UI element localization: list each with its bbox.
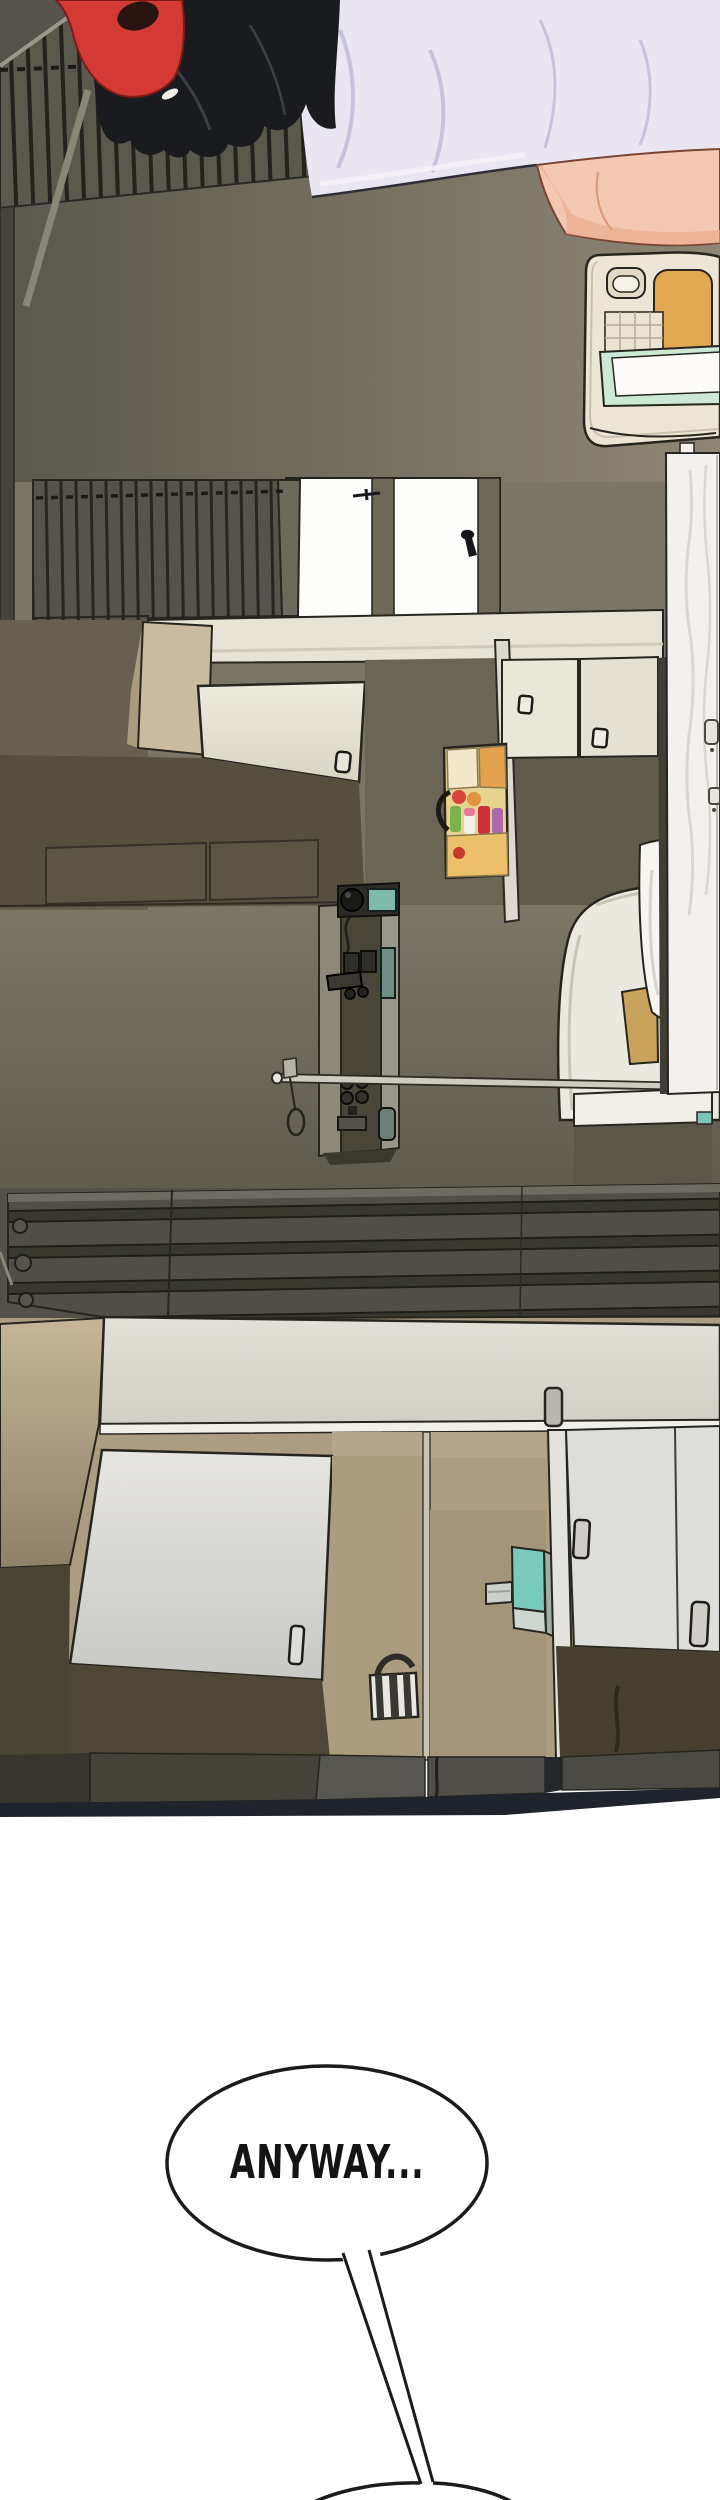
- door-hinge: [705, 720, 718, 744]
- cabinet-slab: [100, 1317, 720, 1424]
- wall-pillar: [0, 206, 14, 624]
- door-hinge: [709, 788, 720, 804]
- fridge-column: [658, 453, 720, 1094]
- pillar-handle: [545, 1388, 562, 1426]
- webtoon-page: ANYWAY...: [0, 0, 720, 2500]
- kitchen2: [0, 1317, 720, 1817]
- tray-handle-slot: [613, 276, 639, 292]
- webtoon-strip: ANYWAY...: [0, 0, 720, 2500]
- window: [286, 478, 500, 617]
- speech-bubble: ANYWAY...: [167, 2066, 487, 2484]
- scale-tray: [584, 253, 720, 454]
- kitchen-scene: [0, 0, 720, 1817]
- speech-bubble-text: ANYWAY...: [229, 2136, 425, 2189]
- next-bubble-arc: [314, 2483, 512, 2500]
- counter-ledge: [145, 610, 663, 663]
- condiment-rack: [438, 744, 508, 878]
- slat-shelf-band: [0, 1184, 720, 1319]
- upper-cabinets: [502, 657, 658, 758]
- sink-column: [319, 883, 399, 1165]
- paper-sheet: [612, 352, 720, 396]
